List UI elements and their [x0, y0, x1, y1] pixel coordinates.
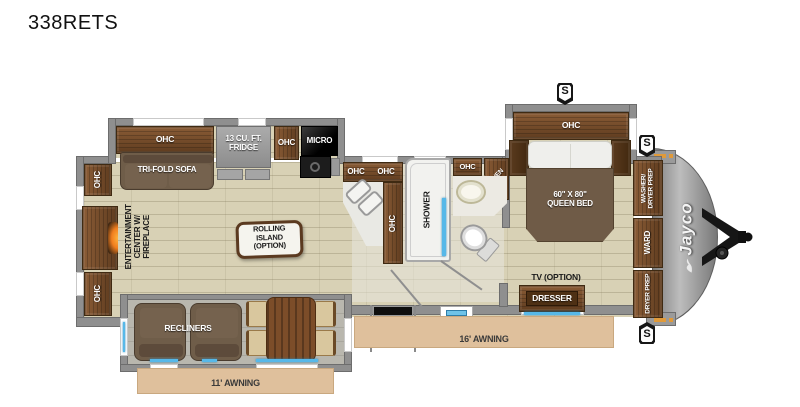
marker-light-top-dot: [669, 154, 673, 158]
ohc-galley-side-label: OHC: [383, 186, 403, 262]
bath-sink: [456, 180, 486, 204]
marker-light-bottom: [654, 318, 666, 322]
jayco-bird-icon: [683, 257, 693, 273]
fridge-label: 13 CU. FT.FRIDGE: [216, 134, 271, 152]
bottom-slide-window-left-glass: [123, 322, 125, 352]
awning-11: 11' AWNING: [137, 368, 334, 394]
fridge-drawer-right: [245, 169, 270, 180]
recliners-label: RECLINERS: [136, 322, 240, 336]
entertainment-center-label: ENTERTAINMENT CENTER W/ FIREPLACE: [116, 178, 160, 296]
ohc-rear-top-label: OHC: [84, 164, 112, 196]
speaker-icon-bed: S: [557, 83, 573, 105]
page-title: 338RETS: [28, 12, 118, 35]
slide-led-2: [202, 359, 217, 362]
window-rear-2: [76, 272, 84, 296]
washer-dryer-prep-label: WASHER/ DRYER PREP: [633, 160, 663, 216]
dinette-chair-4: [314, 330, 336, 356]
speaker-icon-front-bottom: S: [639, 322, 655, 344]
microwave-label: MICRO: [301, 126, 338, 156]
ohc-bed-label: OHC: [513, 112, 629, 140]
tv-option-label: TV (OPTION): [519, 273, 593, 283]
dinette-chair-1: [246, 301, 268, 327]
ohc-sofa-label: OHC: [116, 126, 214, 154]
awning-16-label: 16' AWNING: [459, 334, 508, 347]
wall-bottom-left: [76, 317, 126, 327]
rolling-island-label: ROLLING ISLAND (OPTION): [236, 224, 304, 252]
bed-pillows: [528, 141, 612, 169]
dinette-chair-3: [314, 301, 336, 327]
ohc-galley-label-2: OHC: [371, 162, 401, 182]
kitchen-slide-window-2: [238, 118, 266, 126]
dinette-chair-2: [246, 330, 268, 356]
ohc-galley-label-1: OHC: [343, 162, 369, 182]
slide-led-1: [150, 359, 178, 362]
wall-entry-stub: [499, 283, 508, 307]
fridge-drawer-left: [217, 169, 243, 180]
bed-slide-wall-top: [505, 104, 637, 112]
speaker-icon-front-top: S: [639, 135, 655, 157]
dresser-led: [524, 312, 580, 315]
cooktop: [300, 156, 331, 178]
marker-light-bottom-dot: [669, 318, 673, 322]
ohc-kitchen-small-label: OHC: [274, 126, 299, 160]
dresser-label: DRESSER: [519, 285, 585, 312]
hitch: [700, 206, 754, 268]
counter-drawer: [331, 158, 340, 176]
wardrobe-label: WARD: [633, 218, 663, 268]
awning-16: 16' AWNING: [354, 316, 614, 348]
nightstand-right: [611, 140, 631, 176]
tri-fold-sofa-label: TRI-FOLD SOFA: [120, 158, 214, 182]
kitchen-slide-window-1: [133, 118, 204, 126]
awning-11-label: 11' AWNING: [211, 378, 260, 393]
dryer-prep-label: DRYER PREP: [633, 270, 663, 318]
floorplan-canvas: 338RETS Jayco: [0, 0, 800, 407]
shower-label: SHOWER: [405, 168, 451, 252]
queen-bed-label: 60" X 80" QUEEN BED: [526, 190, 614, 208]
slide-led-3: [256, 359, 318, 362]
kitchen-slide-wall-left: [108, 118, 116, 164]
bottom-slide-window-right: [344, 318, 352, 352]
dinette-table: [266, 297, 316, 362]
ohc-rear-bottom-label: OHC: [84, 272, 112, 316]
ohc-bath-label: OHC: [453, 158, 482, 176]
